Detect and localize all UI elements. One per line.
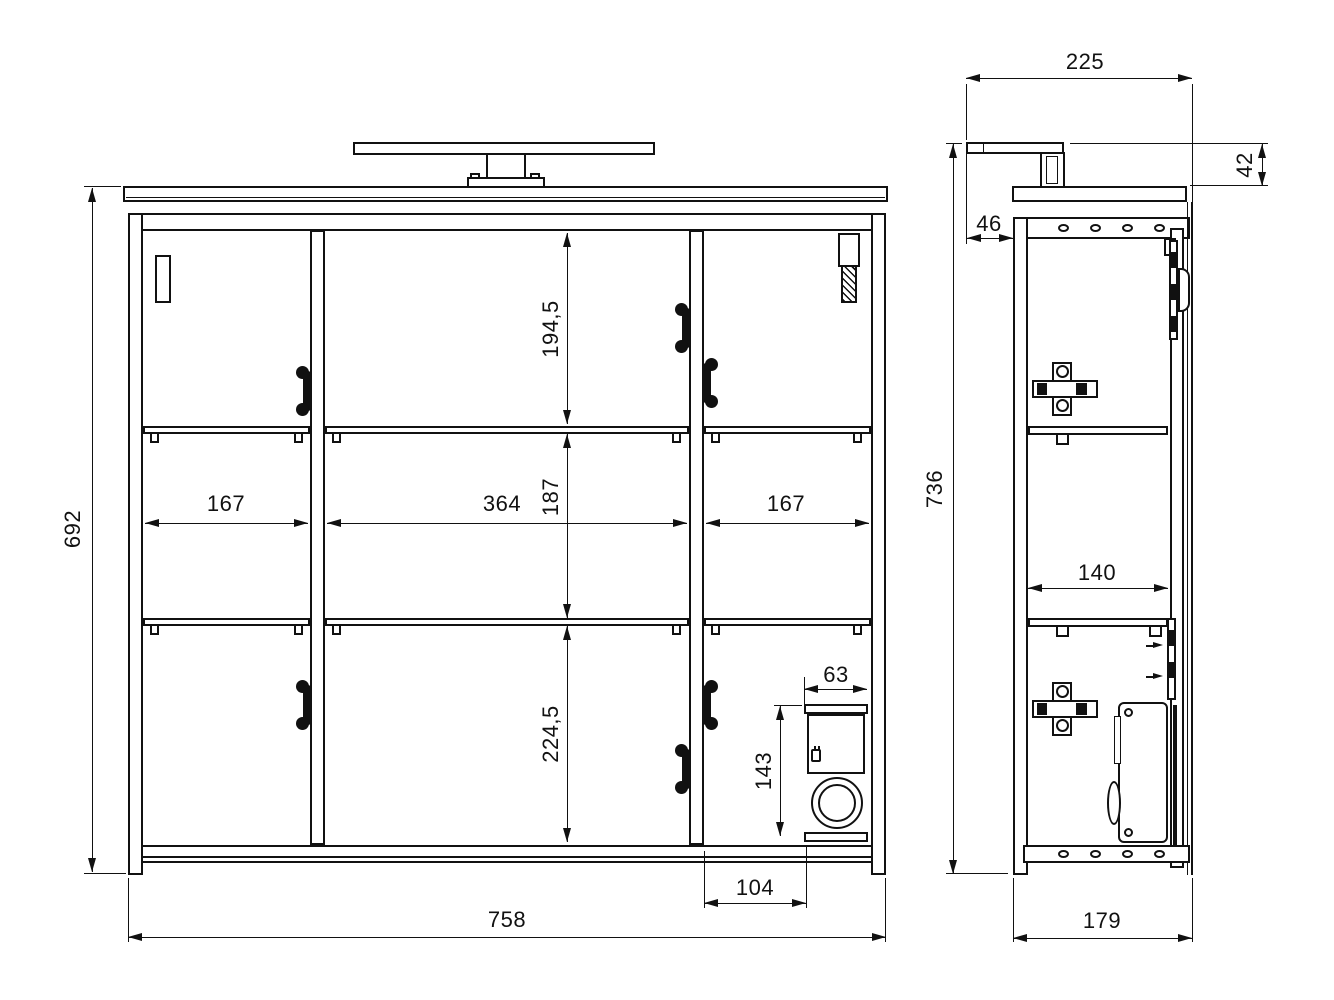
shelf-lower-right [704,618,871,626]
arrowhead [563,434,571,448]
hinge-side-detail [1037,383,1047,395]
shelf-clip [1149,625,1162,637]
hinge-icon [702,680,718,730]
back-panel-side [1013,217,1028,875]
led-driver-box [155,255,171,303]
arrowhead [128,933,142,941]
arrowhead [872,933,886,941]
technical-drawing-canvas: 692 758 194,5 187 224,5 167 364 167 63 1… [0,0,1334,1000]
shelf-side-lower [1028,618,1168,627]
top-board-edge-line [126,197,885,198]
socket-cylinder-side [1107,781,1121,825]
door-rail-side [1173,705,1177,845]
hinge-side-detail [1076,703,1087,715]
shelf-clip [711,432,720,443]
arrowhead [792,899,806,907]
dim-line-104 [704,903,806,904]
ext-line [966,154,967,244]
shelf-clip [672,624,681,635]
dim-line-736 [953,144,954,874]
top-board [123,186,888,202]
side-panel-right [871,213,886,875]
ext-line [84,186,121,187]
wall-hanger-bracket [838,233,860,267]
lamp-arm-post-inner [1046,156,1058,184]
rail-hole [1122,850,1133,858]
arrowhead [673,519,687,527]
ext-line [1190,185,1268,186]
dim-label-body-depth: 179 [1083,910,1121,932]
dim-label-center-compartment: 364 [483,493,521,515]
dim-label-side-total-height: 736 [924,470,946,508]
dim-line-225 [966,78,1192,79]
arrowhead [563,410,571,424]
rail-hole [1090,850,1101,858]
arrowhead [966,74,980,82]
shelf-clip [332,624,341,635]
shelf-clip [672,432,681,443]
rail-hole [1122,224,1133,232]
dim-line-143 [780,706,781,836]
bottom-board-lip [141,861,873,863]
ext-line [84,873,126,874]
arrowhead [949,860,957,874]
dim-line-167-right [706,523,869,524]
dim-line-187 [567,434,568,618]
rail-hole [1154,850,1165,858]
socket-body [807,714,865,774]
dim-line-140 [1028,588,1168,589]
dim-label-lamp-offset: 46 [976,213,1001,235]
top-rail-band [128,213,886,231]
dim-line-167-left [145,523,308,524]
dim-label-total-width: 758 [488,909,526,931]
dim-label-socket-width: 63 [823,664,848,686]
shelf-upper-right [704,426,871,434]
catch-rail-detail [1169,662,1174,678]
ext-line [1192,878,1193,942]
arrowhead [88,188,96,202]
arrowhead [1258,172,1266,186]
mount-rail-detail [1171,252,1176,268]
mount-rail-detail [1171,284,1176,300]
arrowhead [1028,584,1042,592]
arrowhead [776,706,784,720]
dim-label-left-compartment: 167 [207,493,245,515]
divider-left [310,230,325,845]
screw-tip-icon [1153,673,1163,679]
dim-label-total-depth: 225 [1066,51,1104,73]
hinge-icon [296,680,312,730]
socket-top-plate [804,704,868,714]
dim-label-socket-height: 143 [753,752,775,790]
dim-label-middle-height: 187 [540,478,562,516]
screw-tip-icon [1153,642,1163,648]
shelf-clip [294,432,303,443]
front-face-line [1191,202,1193,875]
socket-box-side [1118,702,1168,843]
arrowhead [88,858,96,872]
socket-screw [1124,708,1133,717]
hinge-screw [1056,399,1069,412]
arrowhead [1013,934,1027,942]
arrowhead [1178,74,1192,82]
dim-line-364 [327,523,687,524]
arrowhead [563,233,571,247]
mount-hook [1178,268,1190,312]
shelf-clip [1056,625,1069,637]
shelf-clip [1056,433,1069,445]
shelf-clip [332,432,341,443]
shelf-upper-center [325,426,689,434]
rail-hole [1090,224,1101,232]
hinge-screw [1056,365,1069,378]
arrowhead [704,899,718,907]
side-panel-left [128,213,143,875]
hinge-icon [675,744,691,794]
shelf-clip [853,432,862,443]
dim-line-692 [92,188,93,872]
wall-hanger-rod [841,265,857,303]
rail-hole [1058,850,1069,858]
bottom-board [141,845,873,858]
shelf-lower-left [143,618,310,626]
shelf-clip [150,624,159,635]
arrowhead [563,828,571,842]
socket-slot-side [1114,716,1121,764]
dim-label-total-height: 692 [62,510,84,548]
rail-hole [1154,224,1165,232]
hinge-icon [296,366,312,416]
socket-bottom-plate [804,832,868,842]
ext-line [806,846,807,908]
hinge-icon [702,358,718,408]
dim-label-upper-height: 194,5 [540,300,562,358]
top-board-side [1012,186,1187,202]
hinge-icon [675,303,691,353]
socket-screw [1124,828,1133,837]
arrowhead [804,685,818,693]
dim-label-right-compartment: 167 [767,493,805,515]
shelf-lower-center [325,618,689,626]
dim-label-shelf-depth: 140 [1078,562,1116,584]
dim-label-lamp-height: 42 [1234,152,1256,177]
hinge-side-detail [1037,703,1047,715]
arrowhead [145,519,159,527]
ext-line [1070,143,1268,144]
lamp-stem [486,153,526,179]
hinge-side-detail [1076,383,1087,395]
dim-line-194-5 [567,233,568,424]
hinge-screw [1056,685,1069,698]
shelf-clip [853,624,862,635]
arrowhead [855,519,869,527]
plug-icon [811,749,821,762]
arrowhead [1154,584,1168,592]
ext-line [1013,878,1014,942]
lamp-arm-cap-line [983,144,984,152]
arrowhead [294,519,308,527]
arrowhead [706,519,720,527]
arrowhead [327,519,341,527]
ext-line [1192,84,1193,222]
arrowhead [1178,934,1192,942]
dim-label-socket-offset: 104 [736,877,774,899]
arrowhead [949,144,957,158]
arrowhead [1258,144,1266,158]
dim-line-179 [1013,938,1192,939]
shelf-upper-left [143,426,310,434]
mount-rail-detail [1171,316,1176,332]
socket-outlet-inner [818,784,856,822]
catch-rail-detail [1169,630,1174,646]
dim-line-224-5 [567,626,568,842]
arrowhead [563,626,571,640]
arrowhead [853,685,867,693]
divider-right [689,230,704,845]
ext-line [966,84,967,140]
shelf-clip [294,624,303,635]
arrowhead [776,822,784,836]
shelf-clip [711,624,720,635]
hinge-screw [1056,719,1069,732]
dim-label-lower-height: 224,5 [540,705,562,763]
shelf-side-upper [1028,426,1168,435]
arrowhead [563,604,571,618]
dim-line-758 [128,937,886,938]
rail-hole [1058,224,1069,232]
shelf-clip [150,432,159,443]
